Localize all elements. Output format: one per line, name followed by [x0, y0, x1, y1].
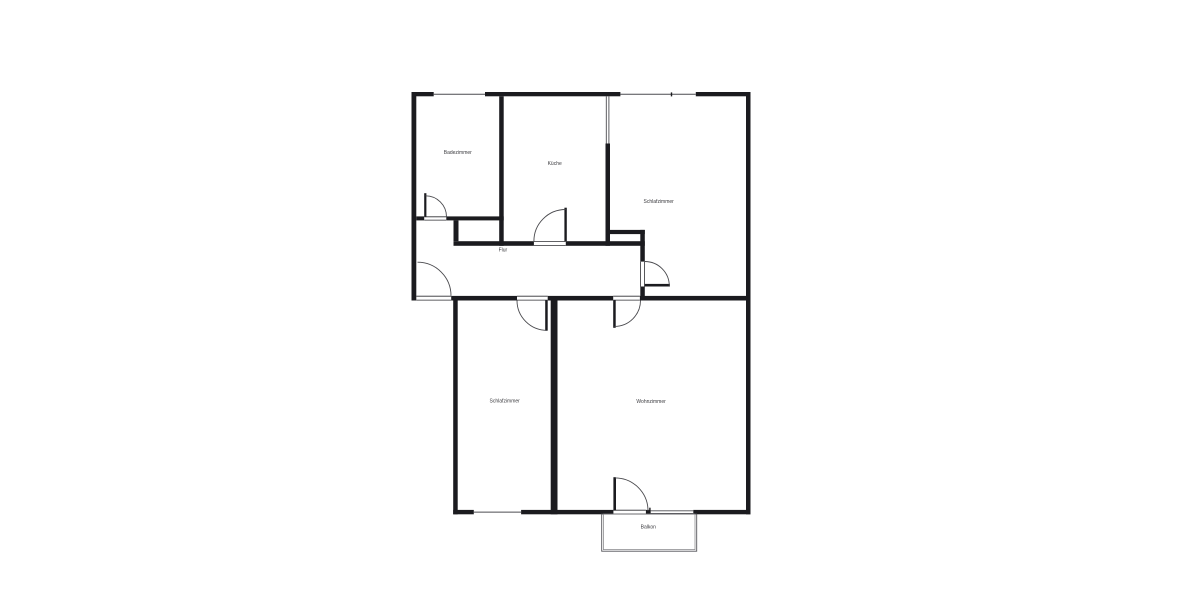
svg-text:Flur: Flur	[499, 248, 508, 254]
svg-text:Wohnzimmer: Wohnzimmer	[636, 399, 666, 405]
svg-text:Küche: Küche	[548, 161, 562, 167]
svg-text:Schlafzimmer: Schlafzimmer	[644, 199, 675, 205]
svg-text:Balkon: Balkon	[641, 524, 657, 530]
svg-text:Badezimmer: Badezimmer	[444, 150, 472, 156]
svg-text:Schlafzimmer: Schlafzimmer	[490, 398, 521, 404]
